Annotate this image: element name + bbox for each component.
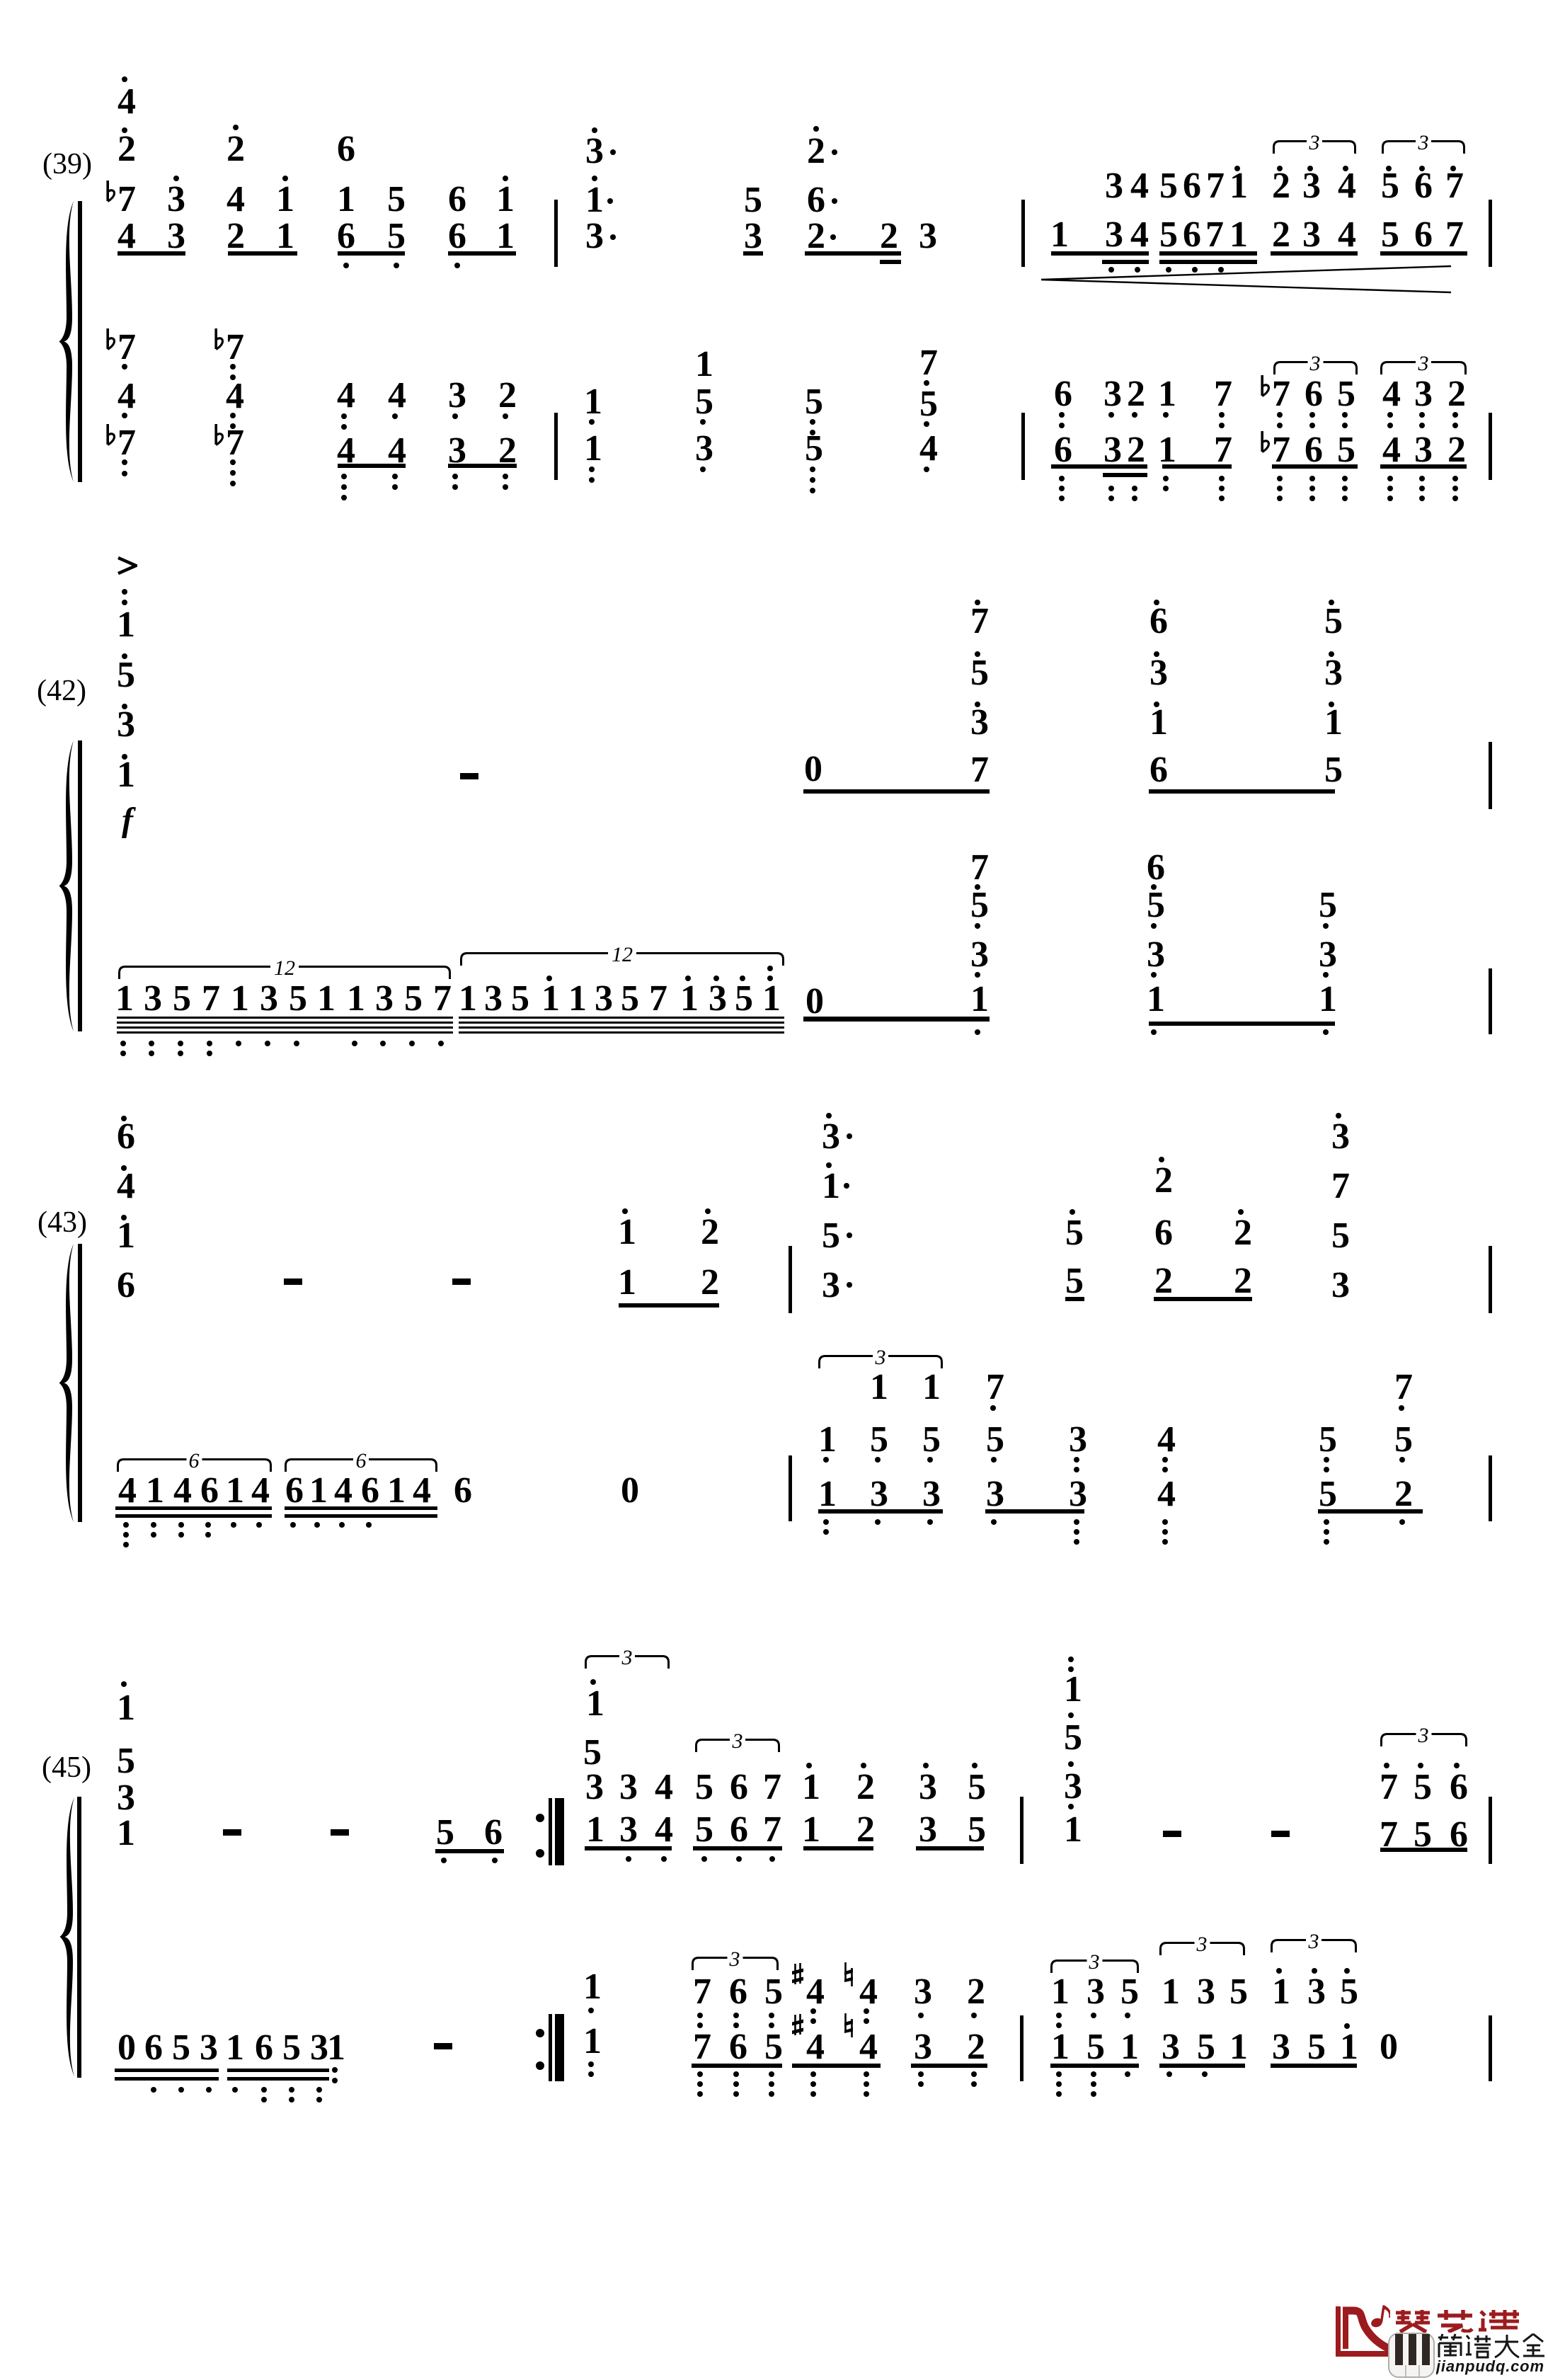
svg-text:jianpudq.com: jianpudq.com <box>1436 2359 1544 2375</box>
